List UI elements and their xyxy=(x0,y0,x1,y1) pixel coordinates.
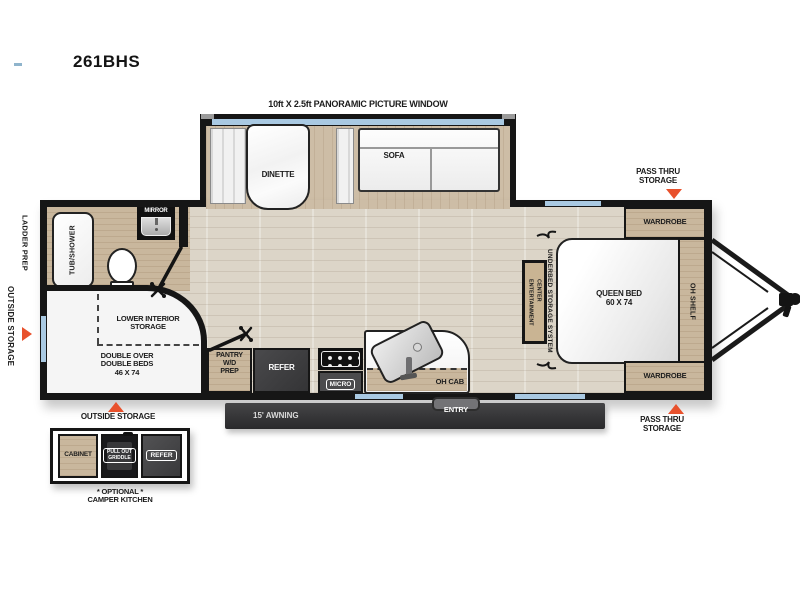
queen-bed-label: QUEEN BED 60 X 74 xyxy=(556,290,682,308)
page-title: 261BHS xyxy=(73,52,140,72)
lower-interior-storage-label: LOWER INTERIOR STORAGE xyxy=(100,315,196,332)
awning-label: 15' AWNING xyxy=(225,403,605,429)
outside-storage-bottom-label: OUTSIDE STORAGE xyxy=(56,413,180,422)
awning-bar: 15' AWNING xyxy=(225,403,605,429)
ck-cabinet-label: CABINET xyxy=(58,451,98,458)
bottom-wall-window-2 xyxy=(515,394,585,399)
pass-thru-bottom-label: PASS THRU STORAGE xyxy=(612,416,712,434)
hitch-coupler-icon xyxy=(779,293,800,318)
oh-shelf-label: OH SHELF xyxy=(681,240,703,362)
mirror-sink: MIRROR xyxy=(137,207,175,240)
title-dash-icon xyxy=(14,63,22,66)
ck-griddle: PULL OUT GRIDDLE xyxy=(101,434,138,478)
toilet xyxy=(107,248,137,284)
sink-hole-dot xyxy=(411,341,423,353)
sofa-label: SOFA xyxy=(358,152,430,161)
rear-wall-baggage-door xyxy=(41,316,46,362)
dinette-bench-right xyxy=(336,128,354,204)
sofa-cushion-seam xyxy=(430,147,432,190)
stove-burners xyxy=(321,351,360,367)
dinette-table xyxy=(246,124,310,210)
ck-griddle-handle xyxy=(123,432,133,436)
ladder-prep-label: LADDER PREP xyxy=(18,203,32,283)
tub-shower-label: TUB/SHOWER xyxy=(58,214,88,286)
ck-refer: REFER xyxy=(141,434,182,478)
slide-endcap-left xyxy=(201,114,214,119)
sink-drain-dot xyxy=(155,228,158,231)
underbed-storage-label: UNDERBED STORAGE SYSTEM xyxy=(543,240,556,362)
sink-faucet-icon xyxy=(155,218,158,225)
bathroom-wall-stub xyxy=(179,207,188,247)
trailer-tongue xyxy=(712,240,792,360)
ck-griddle-label: PULL OUT GRIDDLE xyxy=(103,448,136,463)
mirror-label: MIRROR xyxy=(137,207,175,216)
arrow-up-icon-front xyxy=(668,404,684,414)
refrigerator-label: REFER xyxy=(253,364,310,373)
camper-kitchen-caption: * OPTIONAL * CAMPER KITCHEN xyxy=(52,488,188,505)
bottom-wall-window-1 xyxy=(355,394,403,399)
dinette-bench-left xyxy=(210,128,246,204)
dinette-label: DINETTE xyxy=(246,171,310,180)
entry-label: ENTRY xyxy=(432,397,480,411)
slide-endcap-right xyxy=(502,114,515,119)
pantry-label: PANTRY W/D PREP xyxy=(207,352,252,375)
top-wall-window xyxy=(545,201,601,206)
pass-thru-top-label: PASS THRU STORAGE xyxy=(608,168,708,186)
wardrobe-top-label: WARDROBE xyxy=(624,218,706,226)
stove xyxy=(318,348,363,370)
entertainment-label: ENTERTAINMENT CENTER xyxy=(525,263,544,341)
storage-dashed-line-h xyxy=(97,344,199,346)
arrow-right-icon xyxy=(22,327,32,341)
entry-label-text: ENTRY xyxy=(444,405,468,414)
sofa-back-seam xyxy=(360,147,498,149)
outside-storage-left-label: OUTSIDE STORAGE xyxy=(3,264,18,388)
microwave: MICRO xyxy=(318,371,363,393)
double-beds-label: DOUBLE OVER DOUBLE BEDS 46 X 74 xyxy=(64,352,190,377)
wardrobe-bottom-label: WARDROBE xyxy=(624,372,706,380)
microwave-label: MICRO xyxy=(326,379,356,390)
arrow-down-icon xyxy=(666,189,682,199)
panoramic-window-label: 10ft X 2.5ft PANORAMIC PICTURE WINDOW xyxy=(200,99,516,109)
ck-refer-label: REFER xyxy=(146,450,176,461)
storage-dashed-line-v xyxy=(97,294,99,344)
arrow-up-icon-rear xyxy=(108,402,124,412)
bathroom-sink xyxy=(141,217,171,236)
floorplan-page: 261BHS 10ft X 2.5ft PANORAMIC PICTURE WI… xyxy=(0,0,800,600)
